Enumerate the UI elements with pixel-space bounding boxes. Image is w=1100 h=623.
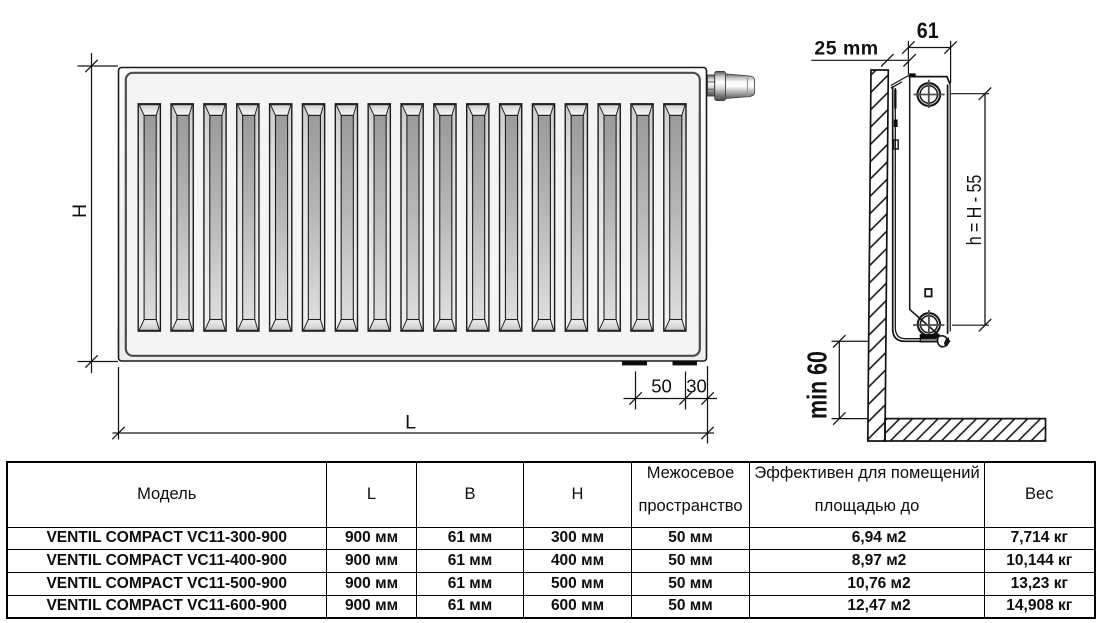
svg-text:h = H - 55: h = H - 55 (962, 175, 985, 246)
svg-text:L: L (405, 412, 416, 434)
svg-text:61: 61 (917, 19, 939, 43)
svg-text:H: H (69, 204, 91, 218)
svg-text:25 mm: 25 mm (814, 37, 878, 59)
svg-text:30: 30 (686, 376, 707, 397)
svg-text:min 60: min 60 (803, 351, 833, 419)
svg-text:50: 50 (651, 376, 672, 397)
